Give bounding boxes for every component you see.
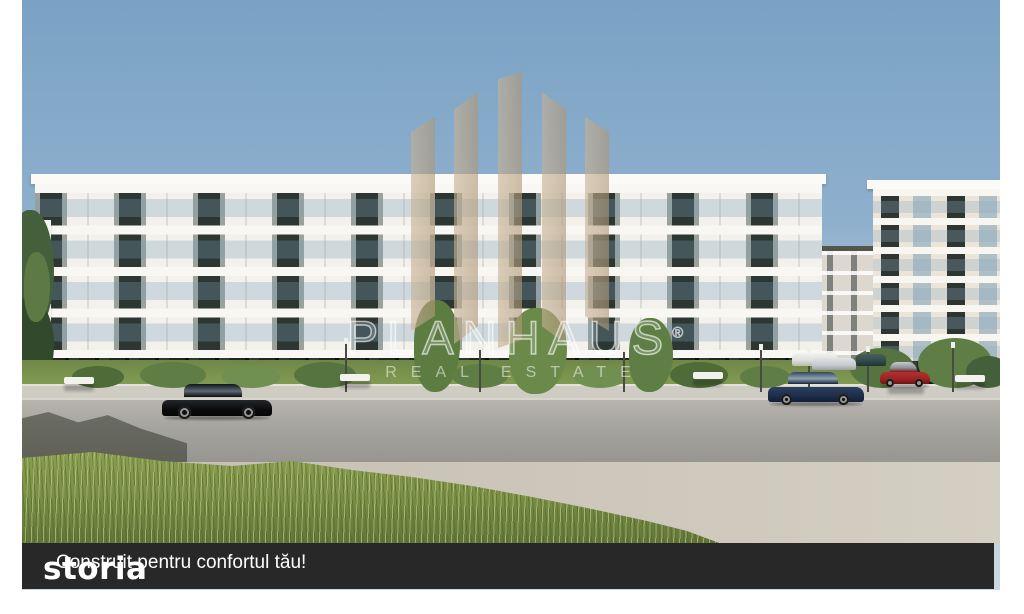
logo-bar — [585, 117, 609, 331]
black-sedan-car — [162, 384, 272, 420]
blue-sedan-car — [768, 372, 864, 406]
right-building-facade — [873, 189, 1000, 361]
bench — [693, 372, 723, 379]
logo-bar — [411, 117, 435, 331]
caption-text: Construit pentru confortul tău! — [56, 552, 306, 574]
right-building-roof — [867, 180, 1000, 189]
street-bollard — [760, 344, 762, 392]
street-bollard — [952, 342, 954, 392]
teal-car — [856, 352, 886, 370]
planhaus-bars-icon — [407, 71, 612, 351]
red-car — [880, 362, 930, 388]
watermark-tagline: REAL ESTATE — [347, 364, 683, 382]
bench — [955, 375, 985, 382]
bench — [64, 377, 94, 384]
logo-bar — [454, 92, 478, 344]
logo-bar — [498, 71, 522, 348]
caption-bar: storia Construit pentru confortul tău! — [22, 543, 994, 589]
logo-bar — [542, 92, 566, 344]
screenshot-canvas: PLANHAUS® REAL ESTATE storia Construit p… — [0, 0, 1024, 614]
watermark: PLANHAUS® REAL ESTATE — [347, 314, 683, 382]
registered-mark: ® — [672, 324, 683, 341]
watermark-brand: PLANHAUS® — [347, 314, 683, 361]
property-render-photo: PLANHAUS® REAL ESTATE storia Construit p… — [22, 0, 1000, 590]
